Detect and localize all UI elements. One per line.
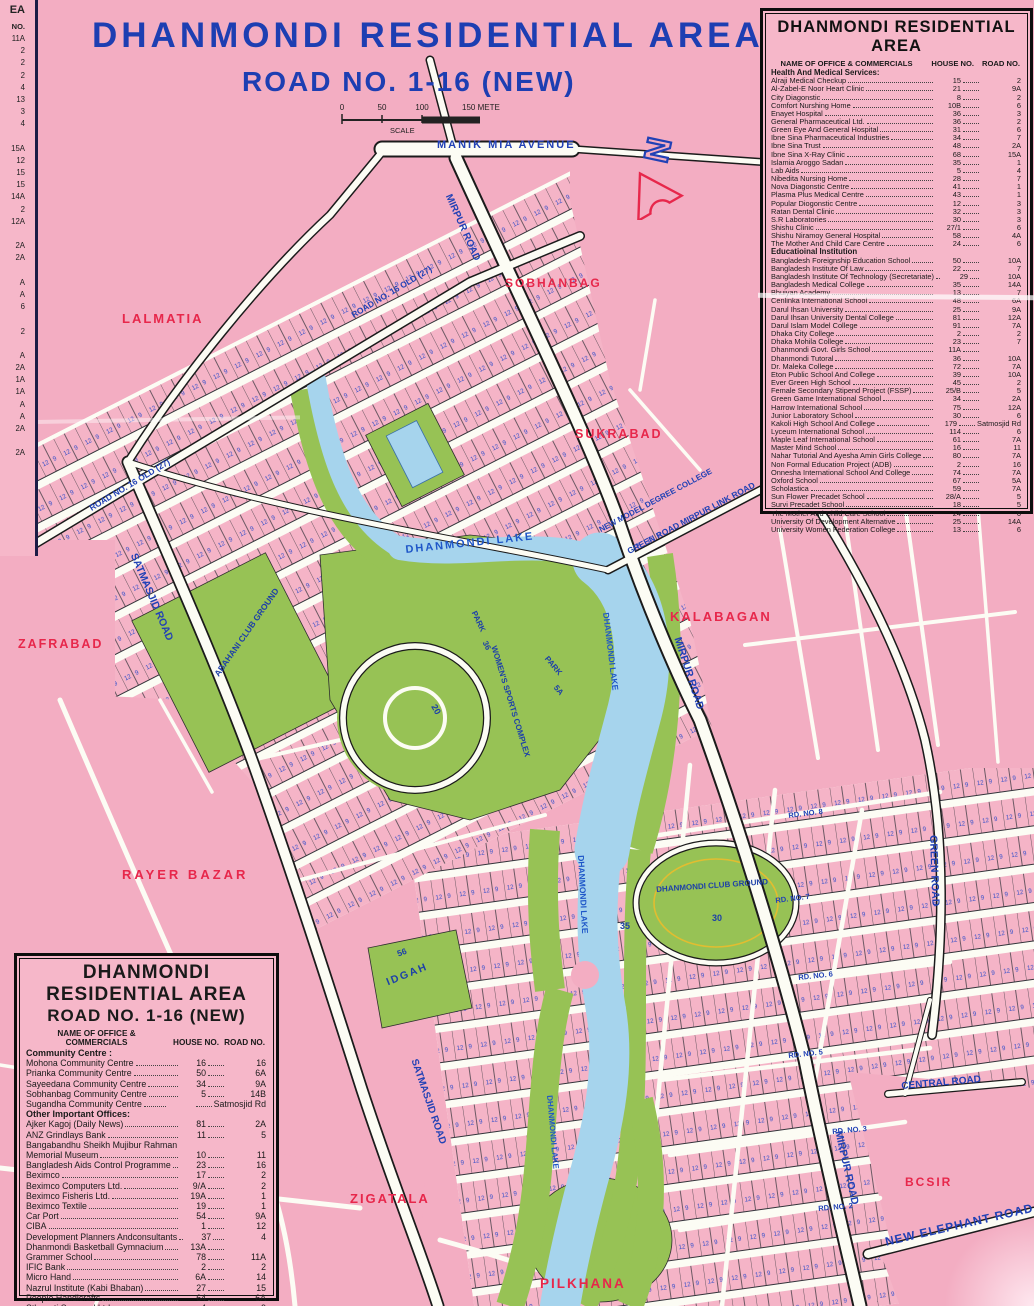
strip-value <box>0 313 35 325</box>
north-letter: N <box>637 134 679 166</box>
directory-panel-right: DHANMONDI RESIDENTIAL AREA NAME OF OFFIC… <box>760 8 1033 514</box>
directory-row: Sugandha Community CentreSatmosjid Rd <box>26 1099 267 1109</box>
scale-tick-150: 150 METER <box>462 103 500 112</box>
strip-value: 13 <box>0 94 35 106</box>
area-label-zafrabad: ZAFRABAD <box>18 638 103 651</box>
strip-value: 4 <box>0 118 35 130</box>
directory-column-headers: NAME OF OFFICE & COMMERCIALS HOUSE NO. R… <box>26 1029 267 1047</box>
directory-row: Ajker Kagoj (Daily News)812A <box>26 1119 267 1129</box>
scale-tick-0: 0 <box>340 103 345 112</box>
scale-label: SCALE <box>390 126 415 135</box>
strip-value: 3 <box>0 106 35 118</box>
strip-values: 11A22241334 15A12151514A212A 2A2A AA6 2 … <box>0 33 35 460</box>
strip-value: A <box>0 277 35 289</box>
strip-value: 2 <box>0 204 35 216</box>
place-label-35: 35 <box>620 922 630 931</box>
directory-panel-left: DHANMONDI RESIDENTIAL AREA ROAD NO. 1-16… <box>14 953 279 1301</box>
directory-row: Mohona Community Centre1616 <box>26 1058 267 1068</box>
directory-row: Sobhanbag Community Centre514B <box>26 1089 267 1099</box>
strip-value: 2 <box>0 57 35 69</box>
scale-tick-100: 100 <box>415 103 429 112</box>
strip-column: NO. <box>0 16 35 33</box>
page-subtitle: ROAD NO. 1-16 (NEW) <box>242 66 576 98</box>
strip-value <box>0 265 35 277</box>
directory-body: Health And Medical Services:Alraji Medic… <box>771 69 1022 534</box>
area-label-sobhanbag: SOBHANBAG <box>505 277 602 289</box>
strip-value <box>0 338 35 350</box>
strip-value: 2A <box>0 240 35 252</box>
strip-header: EA <box>0 0 35 16</box>
area-label-bcsir: BCSIR <box>905 1176 952 1188</box>
directory-row: ANZ Grindlays Bank115 <box>26 1130 267 1140</box>
col-house: HOUSE NO. <box>167 1038 219 1047</box>
directory-subtitle: ROAD NO. 1-16 (NEW) <box>26 1006 267 1026</box>
directory-row: Beximco Computers Ltd.9/A2 <box>26 1181 267 1191</box>
strip-value <box>0 131 35 143</box>
directory-row: Dhanmondi Basketball Gymnacium13A <box>26 1242 267 1252</box>
directory-row: Beximco Textile191 <box>26 1201 267 1211</box>
place-label-30: 30 <box>712 914 722 923</box>
left-edge-directory-strip: EA NO. 11A22241334 15A12151514A212A 2A2A… <box>0 0 38 556</box>
area-label-kalabagan: KALABAGAN <box>670 610 772 623</box>
directory-row: Beximco172 <box>26 1170 267 1180</box>
strip-value: 6 <box>0 301 35 313</box>
strip-value: 14A <box>0 191 35 203</box>
directory-row: Development Planners Andconsultants374 <box>26 1232 267 1242</box>
directory-title: DHANMONDI RESIDENTIAL AREA <box>771 18 1022 56</box>
directory-section-heading: Other Important Offices: <box>26 1109 267 1119</box>
scale-tick-50: 50 <box>378 103 387 112</box>
directory-row: Bangladesh Aids Control Programme2316 <box>26 1160 267 1170</box>
strip-value: 1A <box>0 374 35 386</box>
col-name: NAME OF OFFICE & COMMERCIALS <box>771 59 922 68</box>
road-label-manik-mia-avenue: MANIK MIA AVENUE <box>437 140 576 151</box>
directory-row: Beximco Fisheris Ltd.19A1 <box>26 1191 267 1201</box>
directory-body: Community Centre :Mohona Community Centr… <box>26 1048 267 1306</box>
area-label-pilkhana: PILKHANA <box>540 1277 626 1291</box>
strip-value: 2 <box>0 70 35 82</box>
directory-column-headers: NAME OF OFFICE & COMMERCIALS HOUSE NO. R… <box>771 59 1022 68</box>
directory-row: University Women Federation College136 <box>771 526 1022 534</box>
strip-value: 2A <box>0 423 35 435</box>
directory-row: People Handicrafts646A <box>26 1293 267 1303</box>
strip-value: A <box>0 350 35 362</box>
area-label-sukrabad: SUKRABAD <box>575 428 663 441</box>
directory-row: Islamia Aroggo Sadan351 <box>771 159 1022 167</box>
directory-row: IFIC Bank22 <box>26 1262 267 1272</box>
strip-value: 1A <box>0 386 35 398</box>
area-label-rayer-bazar: RAYER BAZAR <box>122 868 248 881</box>
directory-row: Micro Hand6A14 <box>26 1272 267 1282</box>
strip-value: A <box>0 399 35 411</box>
directory-row: Nazrul Institute (Kabi Bhaban)2715 <box>26 1283 267 1293</box>
strip-value: 15 <box>0 167 35 179</box>
col-road: ROAD NO. <box>219 1038 267 1047</box>
north-arrow-icon <box>618 161 681 220</box>
directory-row: CIBA112 <box>26 1221 267 1231</box>
strip-value: 15 <box>0 179 35 191</box>
col-road: ROAD NO. <box>974 59 1022 68</box>
strip-value: 2A <box>0 447 35 459</box>
north-indicator: N <box>616 134 690 225</box>
strip-value <box>0 228 35 240</box>
strip-value: 12 <box>0 155 35 167</box>
strip-value: 4 <box>0 82 35 94</box>
page-title: DHANMONDI RESIDENTIAL AREA <box>92 16 764 56</box>
strip-value: 2A <box>0 252 35 264</box>
directory-row: Sayeedana Community Centre349A <box>26 1079 267 1089</box>
strip-value: 11A <box>0 33 35 45</box>
map-sheet: 12 9 <box>0 0 1034 1306</box>
area-label-zigatala: ZIGATALA <box>350 1192 430 1205</box>
col-name: NAME OF OFFICE & COMMERCIALS <box>26 1029 167 1047</box>
directory-row: Prianka Community Centre506A <box>26 1068 267 1078</box>
strip-value <box>0 435 35 447</box>
directory-row: Memorial Museum1011 <box>26 1150 267 1160</box>
col-house: HOUSE NO. <box>922 59 974 68</box>
strip-value: 12A <box>0 216 35 228</box>
strip-value: 15A <box>0 143 35 155</box>
road-label-green-road: GREEN ROAD <box>928 835 941 907</box>
strip-value: 2A <box>0 362 35 374</box>
directory-section-heading: Community Centre : <box>26 1048 267 1058</box>
strip-value: A <box>0 411 35 423</box>
directory-row: Bangabandhu Sheikh Mujibur Rahman <box>26 1140 267 1150</box>
directory-row: Grammer School7811A <box>26 1252 267 1262</box>
area-label-lalmatia: LALMATIA <box>122 312 203 325</box>
strip-value: A <box>0 289 35 301</box>
directory-row: Car Port549A <box>26 1211 267 1221</box>
strip-value: 2 <box>0 326 35 338</box>
directory-title: DHANMONDI RESIDENTIAL AREA <box>26 962 267 1006</box>
strip-value: 2 <box>0 45 35 57</box>
